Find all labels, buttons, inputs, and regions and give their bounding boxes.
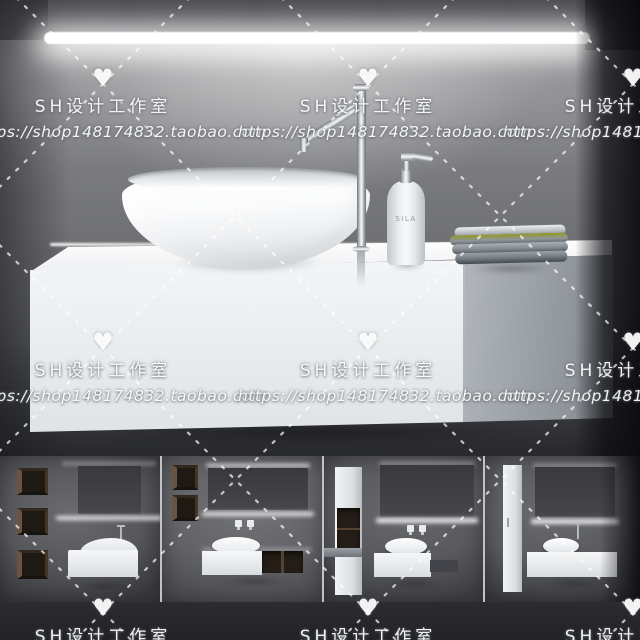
watermark-block: ♥ SH设计工作室 https://shop148174832.taobao.c… bbox=[0, 66, 233, 141]
watermark-block: ♥ SH设计工作室 https://shop148174832.taobao.c… bbox=[238, 330, 498, 405]
heart-icon: ♥ bbox=[238, 596, 498, 620]
heart-icon: ♥ bbox=[0, 66, 233, 90]
watermark-studio-name: SH设计工作室 bbox=[503, 356, 640, 381]
watermark-studio-name: SH设计工作室 bbox=[238, 92, 498, 117]
heart-icon: ♥ bbox=[0, 330, 233, 354]
watermark-shop-url: https://shop148174832.taobao.com bbox=[238, 387, 498, 405]
heart-icon: ♥ bbox=[0, 596, 233, 620]
watermark-shop-url: https://shop148174832.taobao.com bbox=[0, 387, 233, 405]
watermark-studio-name: SH设计工作室 bbox=[238, 622, 498, 640]
watermark-studio-name: SH设计工作室 bbox=[503, 622, 640, 640]
watermark-studio-name: SH设计工作室 bbox=[0, 92, 233, 117]
watermark-block: ♥ SH设计工作室 https://shop148174832.taobao.c… bbox=[503, 596, 640, 640]
watermark-block: ♥ SH设计工作室 https://shop148174832.taobao.c… bbox=[0, 596, 233, 640]
watermark-studio-name: SH设计工作室 bbox=[0, 356, 233, 381]
heart-icon: ♥ bbox=[238, 330, 498, 354]
watermark-shop-url: https://shop148174832.taobao.com bbox=[503, 123, 640, 141]
watermark-block: ♥ SH设计工作室 https://shop148174832.taobao.c… bbox=[0, 330, 233, 405]
watermark-block: ♥ SH设计工作室 https://shop148174832.taobao.c… bbox=[238, 66, 498, 141]
heart-icon: ♥ bbox=[503, 66, 640, 90]
watermark-shop-url: https://shop148174832.taobao.com bbox=[503, 387, 640, 405]
watermark-block: ♥ SH设计工作室 https://shop148174832.taobao.c… bbox=[503, 330, 640, 405]
heart-icon: ♥ bbox=[503, 330, 640, 354]
watermark-shop-url: https://shop148174832.taobao.com bbox=[238, 123, 498, 141]
watermark-studio-name: SH设计工作室 bbox=[503, 92, 640, 117]
product-image: SILA bbox=[0, 0, 640, 640]
heart-icon: ♥ bbox=[503, 596, 640, 620]
watermark-block: ♥ SH设计工作室 https://shop148174832.taobao.c… bbox=[238, 596, 498, 640]
watermark-block: ♥ SH设计工作室 https://shop148174832.taobao.c… bbox=[503, 66, 640, 141]
watermark-studio-name: SH设计工作室 bbox=[0, 622, 233, 640]
watermark-studio-name: SH设计工作室 bbox=[238, 356, 498, 381]
watermark-shop-url: https://shop148174832.taobao.com bbox=[0, 123, 233, 141]
heart-icon: ♥ bbox=[238, 66, 498, 90]
